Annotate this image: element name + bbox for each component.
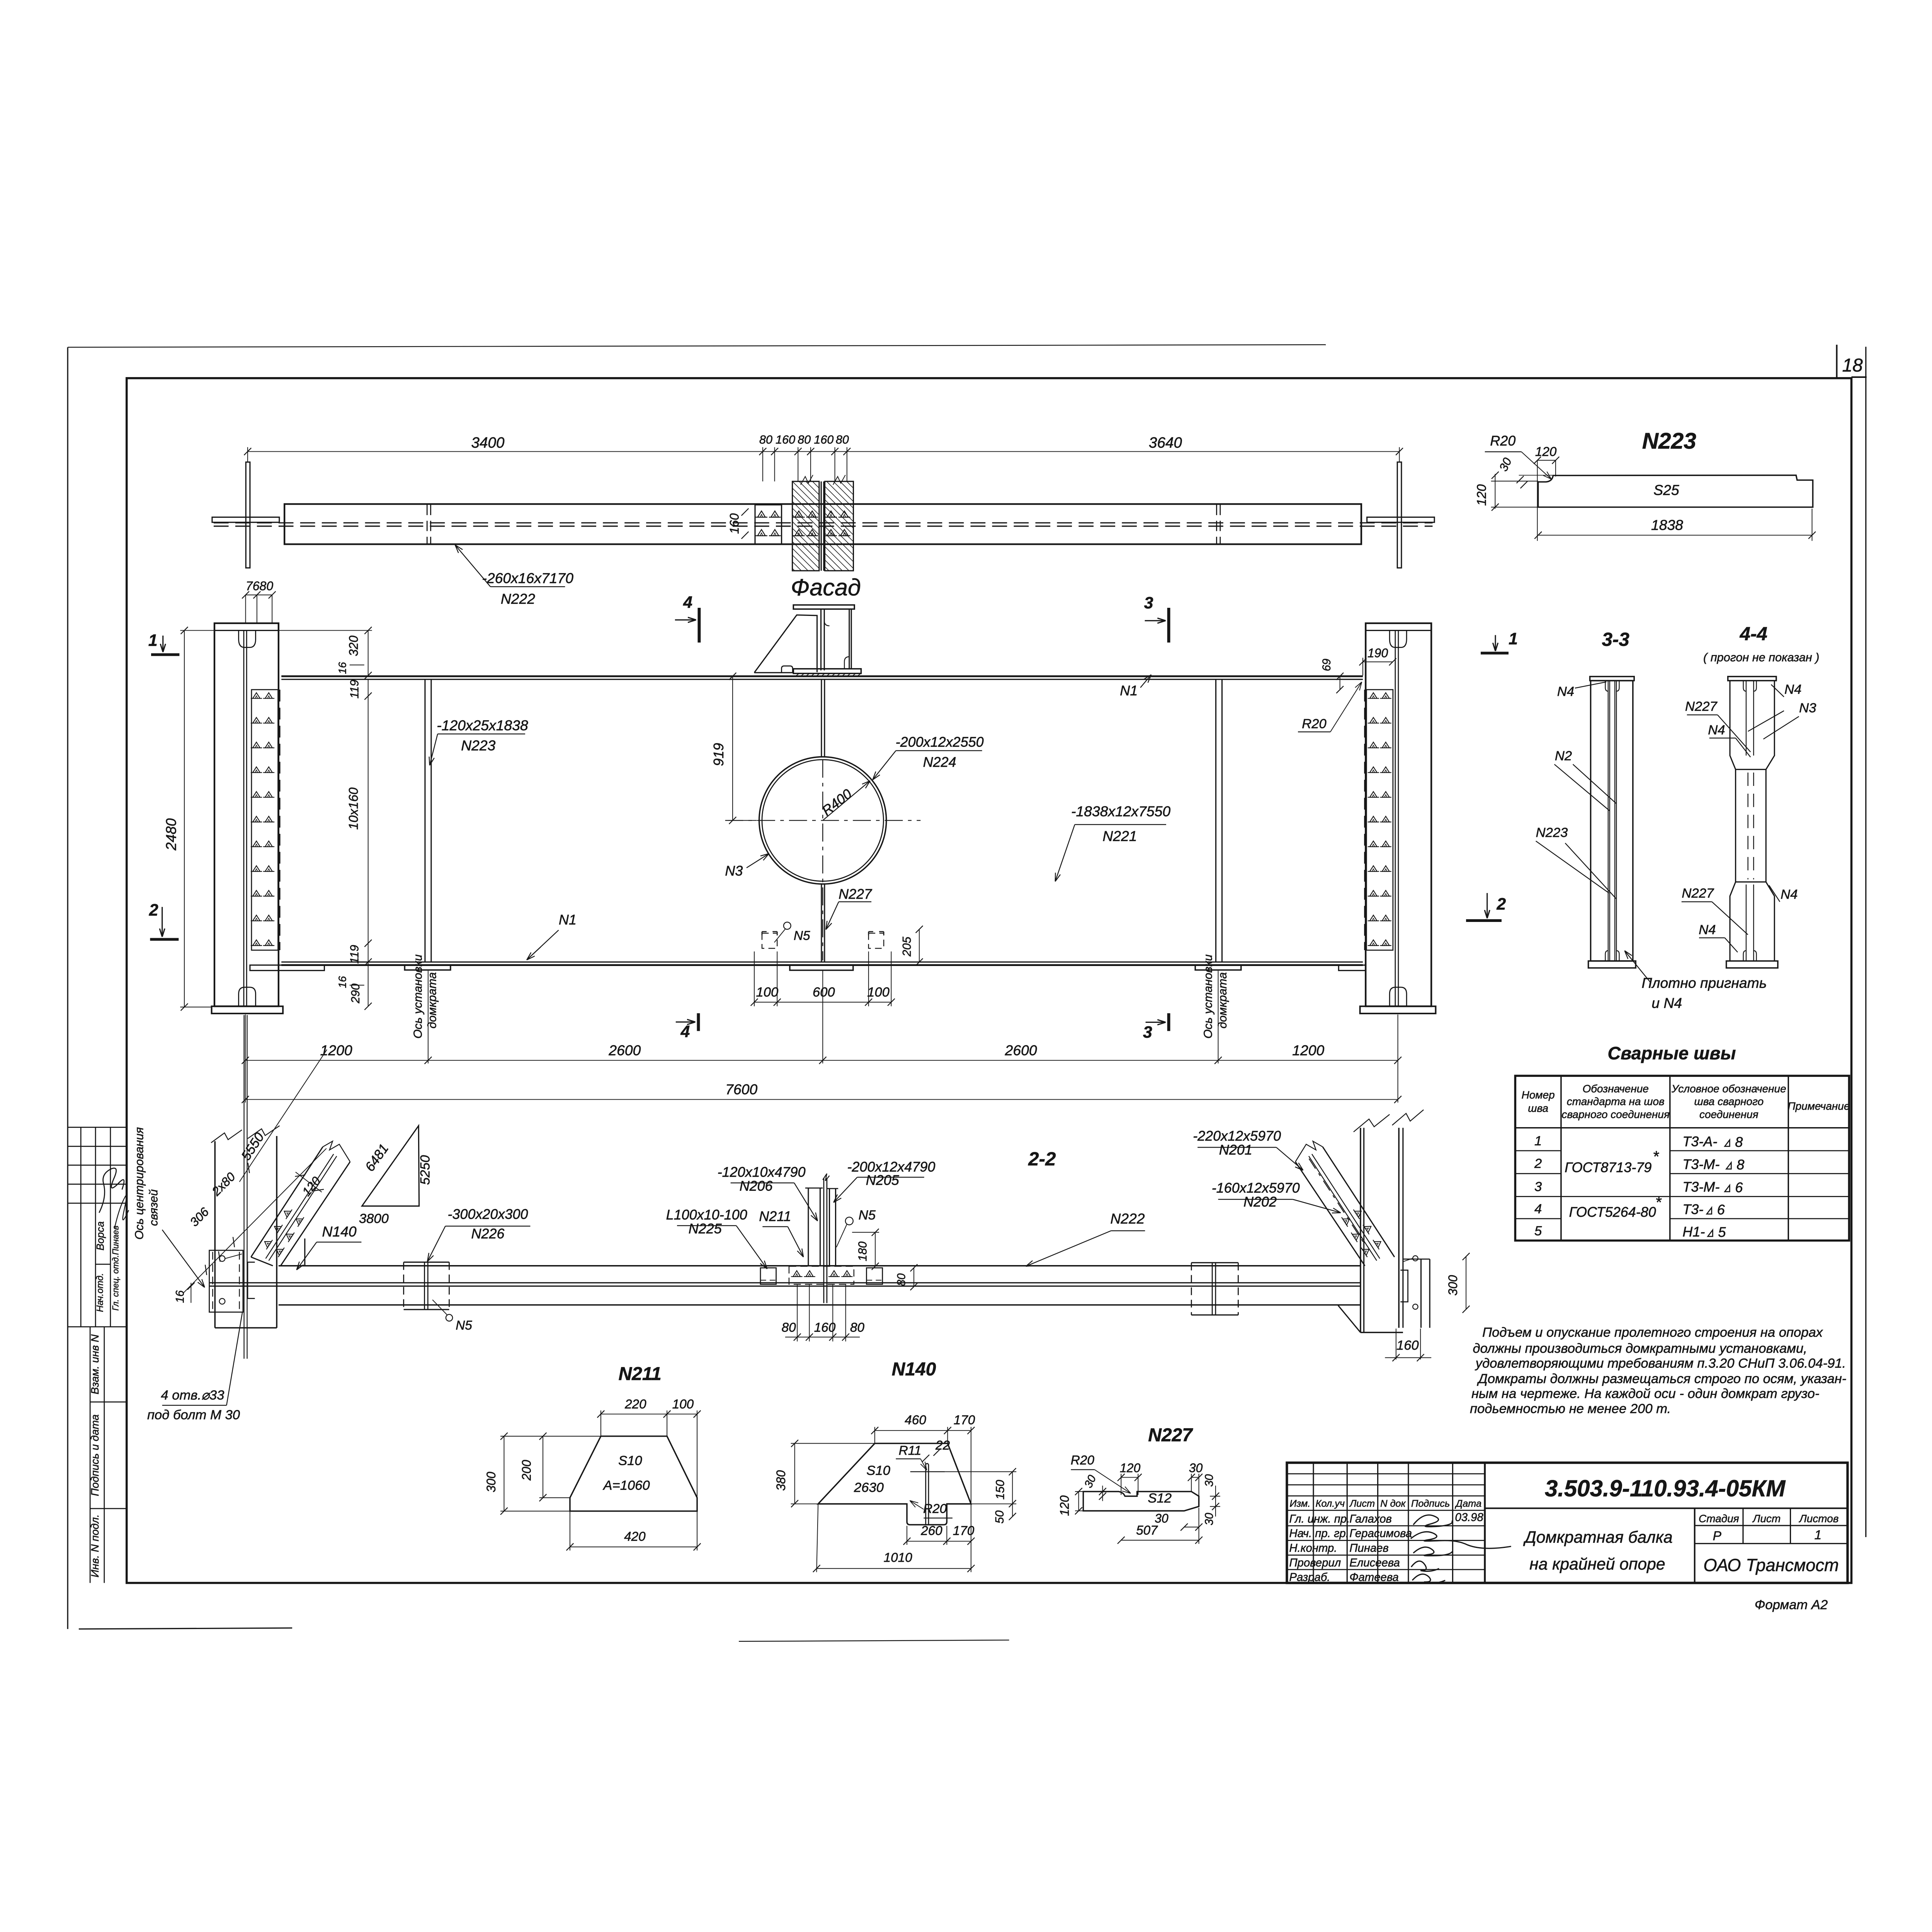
svg-text:1: 1	[148, 631, 158, 650]
svg-text:Нач.отд.: Нач.отд.	[95, 1273, 105, 1312]
svg-text:150: 150	[993, 1480, 1007, 1500]
svg-text:N4: N4	[1781, 887, 1798, 902]
svg-text:3: 3	[1143, 1023, 1152, 1042]
svg-text:N1: N1	[559, 912, 577, 927]
svg-text:1: 1	[1815, 1528, 1822, 1542]
svg-text:N221: N221	[1102, 828, 1137, 844]
svg-text:Т3-М-: Т3-М-	[1682, 1156, 1719, 1172]
svg-text:200: 200	[520, 1460, 534, 1481]
svg-text:507: 507	[1136, 1523, 1158, 1537]
svg-text:Гл. спец. отд.Пинаев: Гл. спец. отд.Пинаев	[111, 1226, 120, 1311]
svg-text:Дата: Дата	[1454, 1498, 1481, 1509]
svg-text:119: 119	[348, 945, 361, 964]
svg-text:под болт М 30: под болт М 30	[147, 1408, 240, 1422]
svg-text:2-2: 2-2	[1028, 1148, 1056, 1170]
svg-text:-300x20x300: -300x20x300	[447, 1206, 528, 1222]
svg-text:Условное обозначение: Условное обозначение	[1671, 1083, 1786, 1095]
svg-text:Проверил: Проверил	[1289, 1556, 1341, 1569]
svg-text:N227: N227	[1148, 1425, 1193, 1446]
svg-text:919: 919	[711, 743, 726, 766]
svg-text:30: 30	[1203, 1474, 1216, 1486]
svg-text:R20: R20	[1490, 433, 1515, 449]
svg-text:6: 6	[1735, 1179, 1743, 1195]
svg-text:1200: 1200	[320, 1042, 352, 1058]
svg-text:R20: R20	[1302, 717, 1327, 731]
svg-text:80: 80	[782, 1320, 796, 1335]
svg-text:120: 120	[1058, 1495, 1071, 1516]
svg-text:160: 160	[776, 433, 795, 446]
svg-text:2: 2	[1534, 1156, 1542, 1171]
svg-text:120: 120	[1120, 1461, 1141, 1475]
svg-text:Домкраты должны размещаться ст: Домкраты должны размещаться строго по ос…	[1476, 1372, 1846, 1386]
svg-text:S12: S12	[1148, 1491, 1172, 1506]
svg-text:подьемностью не менее 200 т.: подьемностью не менее 200 т.	[1470, 1401, 1671, 1416]
svg-text:S25: S25	[1653, 482, 1679, 498]
svg-text:Плотно пригнать: Плотно пригнать	[1641, 975, 1767, 991]
svg-text:Т3-: Т3-	[1682, 1201, 1703, 1217]
svg-text:160: 160	[814, 433, 833, 446]
svg-text:5: 5	[1718, 1224, 1726, 1240]
svg-text:L100x10-100: L100x10-100	[666, 1207, 747, 1223]
svg-text:3800: 3800	[359, 1211, 389, 1226]
svg-text:N227: N227	[1685, 699, 1718, 714]
svg-text:69: 69	[1320, 659, 1333, 672]
svg-text:190: 190	[1367, 646, 1388, 660]
svg-text:100: 100	[867, 985, 889, 1000]
svg-text:R20: R20	[1071, 1453, 1095, 1468]
svg-text:-120x25x1838: -120x25x1838	[437, 717, 528, 733]
svg-text:220: 220	[624, 1397, 646, 1412]
svg-text:300: 300	[484, 1472, 498, 1493]
svg-text:Изм.: Изм.	[1289, 1498, 1310, 1509]
svg-text:80: 80	[836, 433, 849, 446]
svg-text:2: 2	[1497, 895, 1506, 913]
svg-text:N222: N222	[1110, 1211, 1145, 1227]
svg-text:N223: N223	[1642, 429, 1696, 454]
svg-text:180: 180	[856, 1242, 869, 1261]
svg-text:домкрата: домкрата	[1216, 972, 1229, 1029]
svg-text:Ворса: Ворса	[94, 1221, 106, 1251]
svg-text:Формат А2: Формат А2	[1755, 1598, 1828, 1612]
svg-text:-200x12x2550: -200x12x2550	[896, 734, 984, 750]
svg-text:1010: 1010	[884, 1551, 913, 1565]
svg-text:-120x10x4790: -120x10x4790	[718, 1164, 806, 1180]
svg-text:10x160: 10x160	[347, 787, 361, 830]
svg-text:6: 6	[1717, 1202, 1725, 1218]
svg-text:Номер: Номер	[1522, 1089, 1555, 1101]
svg-text:3-3: 3-3	[1602, 629, 1629, 650]
svg-text:R20: R20	[923, 1502, 947, 1516]
svg-text:N док: N док	[1380, 1498, 1406, 1509]
svg-text:N4: N4	[1699, 923, 1716, 937]
svg-text:80: 80	[850, 1320, 865, 1335]
svg-text:N223: N223	[1536, 825, 1568, 840]
svg-text:-1838x12x7550: -1838x12x7550	[1071, 803, 1170, 820]
svg-text:N211: N211	[759, 1208, 791, 1224]
svg-text:170: 170	[954, 1413, 975, 1427]
svg-text:30: 30	[1189, 1461, 1203, 1475]
svg-text:Подпись: Подпись	[1411, 1498, 1450, 1509]
svg-text:7600: 7600	[725, 1081, 757, 1097]
svg-text:Примечание: Примечание	[1787, 1100, 1850, 1112]
svg-text:N3: N3	[1799, 701, 1816, 715]
svg-text:Елисеева: Елисеева	[1349, 1556, 1400, 1569]
svg-text:120: 120	[1475, 484, 1489, 506]
svg-text:N4: N4	[1557, 684, 1574, 699]
svg-text:8: 8	[1736, 1157, 1744, 1173]
svg-text:Гл. инж. пр.: Гл. инж. пр.	[1289, 1513, 1350, 1526]
svg-text:50: 50	[993, 1510, 1006, 1524]
svg-text:22: 22	[935, 1438, 950, 1452]
svg-text:3400: 3400	[471, 435, 505, 451]
svg-text:18: 18	[1842, 355, 1863, 376]
svg-text:Взам. инв N: Взам. инв N	[89, 1334, 101, 1395]
svg-text:4-4: 4-4	[1740, 623, 1767, 645]
svg-text:N226: N226	[471, 1226, 504, 1242]
svg-text:N201: N201	[1219, 1142, 1252, 1158]
svg-text:Р: Р	[1713, 1529, 1721, 1543]
svg-text:3.503.9-110.93.4-05КМ: 3.503.9-110.93.4-05КМ	[1545, 1476, 1786, 1502]
svg-text:N140: N140	[322, 1223, 356, 1240]
svg-text:100: 100	[756, 985, 778, 1000]
svg-text:420: 420	[624, 1529, 646, 1544]
svg-text:119: 119	[348, 680, 361, 699]
svg-text:Лист: Лист	[1752, 1512, 1781, 1524]
svg-text:на крайней опоре: на крайней опоре	[1529, 1555, 1665, 1573]
svg-text:Подпись и дата: Подпись и дата	[89, 1414, 101, 1496]
svg-text:2: 2	[149, 901, 158, 920]
svg-text:N2: N2	[1555, 748, 1572, 763]
svg-text:Н1-: Н1-	[1682, 1224, 1705, 1240]
svg-text:N140: N140	[892, 1359, 936, 1380]
svg-text:Сварные швы: Сварные швы	[1607, 1043, 1736, 1063]
svg-text:N5: N5	[456, 1318, 472, 1333]
svg-text:шва: шва	[1528, 1102, 1548, 1114]
svg-text:N222: N222	[501, 590, 535, 607]
svg-text:Герасимова: Герасимова	[1349, 1527, 1412, 1540]
svg-text:7680: 7680	[246, 579, 273, 593]
svg-text:16: 16	[174, 1290, 187, 1303]
svg-text:стандарта на шов: стандарта на шов	[1567, 1095, 1665, 1107]
svg-text:N206: N206	[740, 1178, 773, 1194]
svg-text:290: 290	[349, 983, 362, 1003]
svg-text:S10: S10	[866, 1463, 890, 1478]
svg-text:Подъем и опускание пролетного: Подъем и опускание пролетного строения н…	[1482, 1325, 1823, 1340]
svg-text:1: 1	[1534, 1134, 1542, 1148]
svg-text:460: 460	[905, 1413, 926, 1427]
svg-text:5: 5	[1534, 1224, 1542, 1238]
svg-text:удовлетворяющими требованиям п: удовлетворяющими требованиям п.3.20 СНиП…	[1475, 1356, 1846, 1371]
svg-text:N5: N5	[859, 1208, 876, 1223]
svg-text:Ось установки: Ось установки	[1202, 954, 1215, 1039]
svg-text:Галахов: Галахов	[1349, 1513, 1392, 1526]
svg-text:80: 80	[759, 433, 772, 446]
svg-text:320: 320	[347, 636, 361, 656]
svg-text:R11: R11	[899, 1444, 922, 1458]
svg-text:2630: 2630	[854, 1480, 884, 1495]
svg-text:600: 600	[813, 985, 835, 1000]
svg-text:2600: 2600	[608, 1042, 641, 1058]
svg-text:Кол.уч: Кол.уч	[1316, 1498, 1345, 1509]
svg-text:Домкратная балка: Домкратная балка	[1523, 1528, 1673, 1547]
svg-text:ГОСТ5264-80: ГОСТ5264-80	[1569, 1204, 1656, 1220]
svg-text:3: 3	[1534, 1180, 1542, 1194]
svg-text:3640: 3640	[1149, 435, 1182, 451]
svg-text:120: 120	[1535, 445, 1557, 459]
svg-text:4: 4	[683, 593, 692, 612]
svg-text:160: 160	[814, 1320, 836, 1335]
svg-text:03.98: 03.98	[1455, 1511, 1483, 1524]
svg-text:N211: N211	[619, 1364, 662, 1384]
svg-text:домкрата: домкрата	[426, 972, 439, 1029]
svg-text:должны производиться домкратны: должны производиться домкратными установ…	[1473, 1341, 1807, 1356]
svg-text:1838: 1838	[1651, 517, 1683, 533]
svg-text:Ось центрирования: Ось центрирования	[133, 1127, 146, 1240]
svg-text:80: 80	[895, 1273, 908, 1286]
svg-text:N5: N5	[794, 929, 810, 943]
svg-text:Фасад: Фасад	[791, 574, 861, 600]
svg-text:Фатеева: Фатеева	[1349, 1571, 1399, 1583]
svg-text:-220x12x5970: -220x12x5970	[1193, 1128, 1281, 1144]
svg-text:2600: 2600	[1005, 1042, 1037, 1058]
svg-text:Разраб.: Разраб.	[1289, 1571, 1330, 1583]
svg-text:Т3-А-: Т3-А-	[1682, 1134, 1717, 1150]
svg-text:Т3-М-: Т3-М-	[1682, 1179, 1719, 1195]
svg-text:N223: N223	[461, 737, 495, 753]
svg-text:ГОСТ8713-79: ГОСТ8713-79	[1565, 1159, 1651, 1175]
svg-text:ным на чертеже. На каждой оси: ным на чертеже. На каждой оси - один дом…	[1471, 1386, 1819, 1401]
svg-text:Лист: Лист	[1349, 1498, 1375, 1509]
svg-text:N224: N224	[923, 754, 956, 770]
svg-text:Нач. пр. гр.: Нач. пр. гр.	[1289, 1527, 1349, 1540]
svg-text:16: 16	[336, 976, 348, 988]
svg-text:Н.контр.: Н.контр.	[1289, 1542, 1337, 1554]
svg-text:N225: N225	[689, 1221, 722, 1236]
svg-text:205: 205	[900, 936, 913, 957]
svg-text:160: 160	[727, 513, 741, 534]
svg-text:ОАО Трансмост: ОАО Трансмост	[1703, 1555, 1838, 1575]
svg-text:4 отв.⌀33: 4 отв.⌀33	[161, 1388, 224, 1403]
svg-text:A=1060: A=1060	[602, 1478, 650, 1493]
svg-text:сварного соединения: сварного соединения	[1561, 1108, 1670, 1120]
svg-text:1: 1	[1509, 630, 1518, 648]
svg-text:S10: S10	[618, 1453, 642, 1468]
svg-text:380: 380	[774, 1470, 788, 1491]
svg-text:Листов: Листов	[1799, 1512, 1839, 1524]
svg-text:N227: N227	[838, 886, 872, 902]
svg-text:4: 4	[680, 1022, 690, 1041]
svg-text:8: 8	[1735, 1134, 1743, 1150]
svg-text:Пинаев: Пинаев	[1349, 1542, 1389, 1554]
svg-text:260: 260	[920, 1524, 942, 1538]
svg-text:*: *	[1653, 1148, 1659, 1165]
svg-text:*: *	[1655, 1194, 1662, 1211]
svg-text:N1: N1	[1120, 682, 1138, 698]
svg-text:30: 30	[1203, 1512, 1216, 1525]
svg-text:N4: N4	[1708, 723, 1725, 738]
svg-text:N4: N4	[1784, 682, 1801, 697]
svg-text:Ось установки: Ось установки	[411, 954, 424, 1039]
svg-text:2480: 2480	[163, 818, 179, 850]
svg-text:соединения: соединения	[1699, 1108, 1759, 1120]
svg-text:Стадия: Стадия	[1699, 1512, 1739, 1524]
svg-text:шва сварного: шва сварного	[1694, 1095, 1764, 1107]
svg-text:Обозначение: Обозначение	[1583, 1083, 1649, 1095]
svg-text:N205: N205	[866, 1172, 900, 1188]
svg-text:1200: 1200	[1292, 1042, 1324, 1058]
svg-text:N202: N202	[1243, 1194, 1277, 1210]
svg-text:5250: 5250	[418, 1155, 432, 1185]
svg-text:3: 3	[1144, 594, 1153, 612]
svg-text:100: 100	[672, 1397, 694, 1412]
svg-text:Инв. N подл.: Инв. N подл.	[89, 1514, 101, 1577]
svg-text:и N4: и N4	[1651, 995, 1682, 1011]
svg-text:300: 300	[1446, 1275, 1460, 1296]
svg-text:( прогон не показан ): ( прогон не показан )	[1703, 651, 1819, 664]
svg-text:N3: N3	[725, 863, 743, 879]
svg-text:4: 4	[1534, 1202, 1542, 1216]
svg-text:160: 160	[1396, 1338, 1419, 1353]
svg-text:80: 80	[798, 433, 811, 446]
svg-text:-160x12x5970: -160x12x5970	[1212, 1180, 1300, 1196]
svg-text:-260x16x7170: -260x16x7170	[482, 570, 574, 586]
svg-text:16: 16	[336, 662, 348, 674]
svg-text:связей: связей	[147, 1189, 160, 1226]
svg-text:N227: N227	[1682, 886, 1714, 901]
